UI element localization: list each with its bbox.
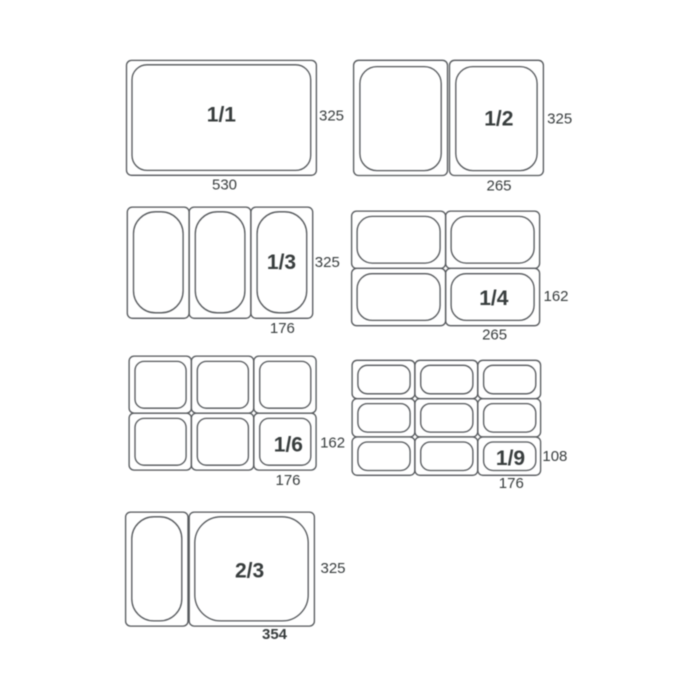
svg-text:530: 530	[212, 177, 237, 194]
svg-text:325: 325	[320, 560, 345, 577]
svg-text:162: 162	[543, 288, 568, 305]
svg-text:1/4: 1/4	[479, 287, 509, 310]
svg-text:325: 325	[547, 110, 572, 127]
svg-text:176: 176	[270, 320, 295, 337]
svg-text:1/1: 1/1	[207, 104, 237, 127]
svg-text:354: 354	[262, 626, 288, 643]
svg-text:1/3: 1/3	[267, 251, 296, 274]
svg-text:325: 325	[319, 108, 344, 125]
svg-text:325: 325	[315, 254, 340, 271]
svg-text:162: 162	[320, 435, 345, 452]
svg-text:265: 265	[482, 327, 507, 344]
svg-text:1/6: 1/6	[274, 433, 303, 456]
svg-text:108: 108	[542, 448, 567, 465]
svg-text:1/9: 1/9	[496, 447, 525, 470]
svg-text:1/2: 1/2	[484, 108, 513, 131]
svg-text:176: 176	[275, 472, 300, 489]
svg-text:2/3: 2/3	[235, 559, 264, 582]
svg-text:176: 176	[499, 475, 524, 492]
svg-text:265: 265	[486, 178, 511, 195]
